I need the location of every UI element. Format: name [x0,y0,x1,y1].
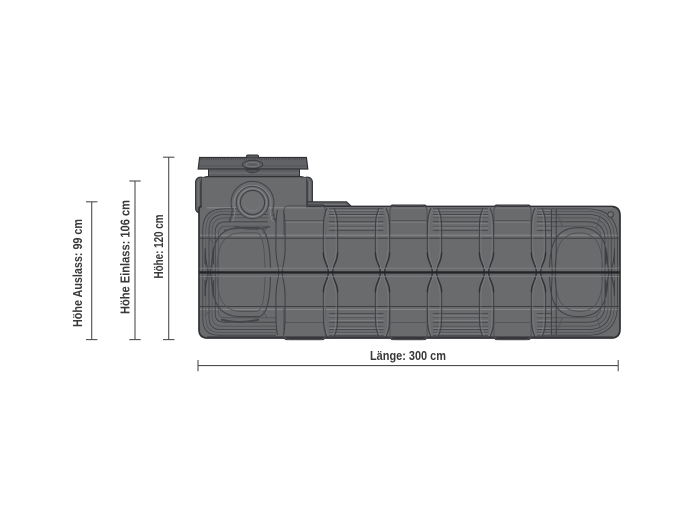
svg-text:Höhe: 120 cm: Höhe: 120 cm [151,215,166,279]
svg-text:Höhe Auslass: 99 cm: Höhe Auslass: 99 cm [70,219,85,327]
svg-text:Länge: 300 cm: Länge: 300 cm [370,348,446,363]
svg-text:Höhe Einlass: 106 cm: Höhe Einlass: 106 cm [117,200,132,314]
